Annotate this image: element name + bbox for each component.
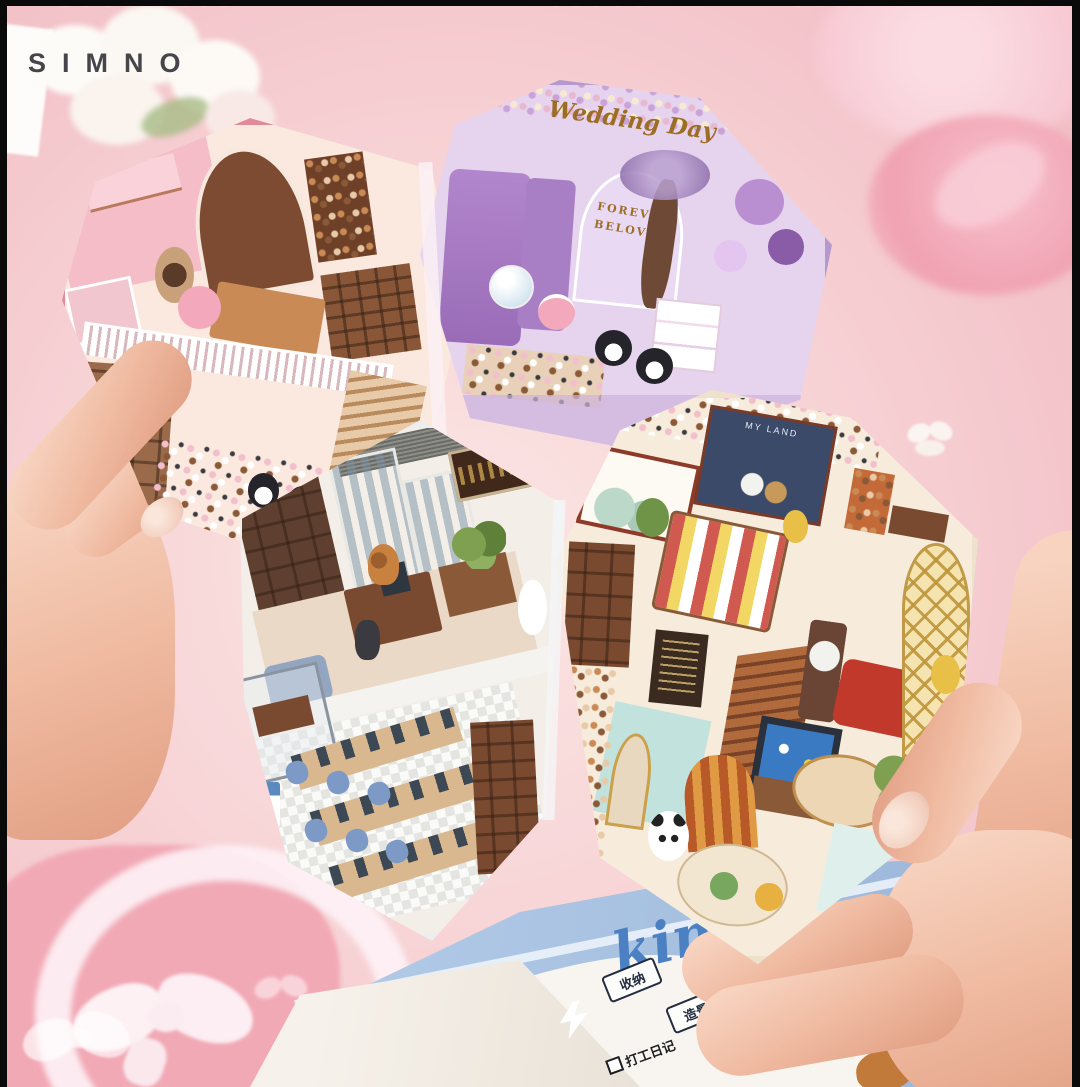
display-shelf-right [321,263,422,362]
letter-board [649,630,710,708]
balloon [735,179,784,226]
product-photo: SIMNO king Diary 收纳 造景 交互 [0,0,1080,1087]
bookcase-left [563,541,635,667]
frame-edge-right [1072,0,1080,1087]
capybara-boss [368,544,399,584]
panda-character [648,811,689,861]
potted-plants [449,514,506,570]
penguin-character [595,330,632,366]
projector-screen: MY LAND [694,404,839,526]
menu-board [304,152,376,264]
wall-shelf [888,505,949,542]
plant-small [636,498,669,537]
crystal-globe [489,265,534,309]
bunny-character [518,580,546,636]
shelf-lamp [783,510,808,543]
tree-foliage [620,150,710,200]
balloon [768,229,805,265]
pig-character [178,286,221,330]
bride-pig-character [538,294,575,330]
balloon [714,240,747,272]
office-chair [355,620,380,660]
frame-edge-left [0,0,7,1087]
wall-poster [844,467,895,535]
frame-edge-top [0,0,1080,6]
bed-with-quilt [651,509,790,633]
penguin-character [636,348,673,384]
